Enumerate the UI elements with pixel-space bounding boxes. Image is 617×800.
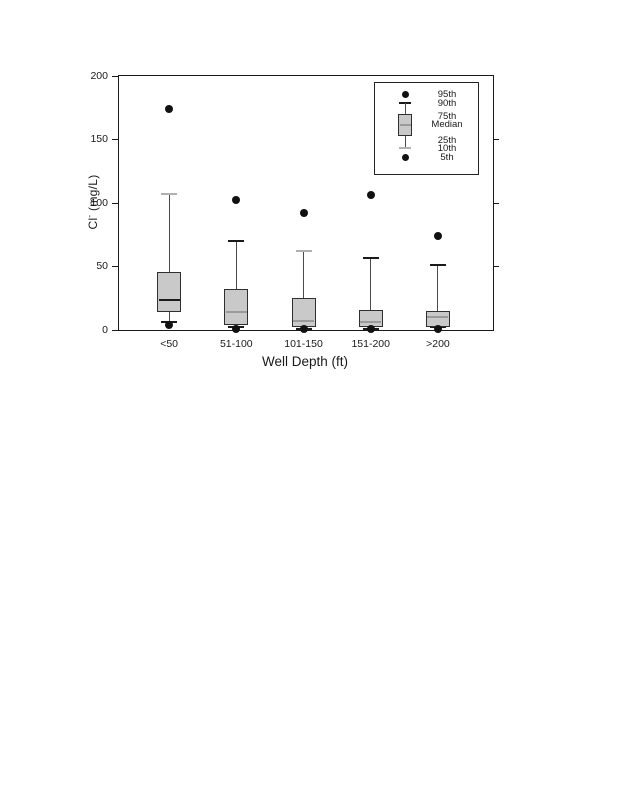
p5-dot	[367, 325, 375, 333]
x-category-label: 51-100	[201, 338, 271, 350]
median-line	[293, 320, 314, 322]
legend-entry-label: 5th	[421, 152, 473, 163]
p95-dot	[434, 232, 442, 240]
right-tick-mark	[494, 266, 499, 267]
whisker-cap	[296, 250, 312, 252]
whisker-cap	[161, 193, 177, 195]
legend-sample-whisker-line	[405, 103, 406, 114]
y-tick-mark	[112, 266, 118, 267]
y-tick-label: 200	[78, 70, 108, 83]
median-line	[226, 311, 247, 313]
y-tick-label: 0	[78, 324, 108, 337]
median-line	[159, 299, 180, 301]
p5-dot	[232, 325, 240, 333]
p95-dot	[232, 196, 240, 204]
y-tick-mark	[112, 76, 118, 77]
y-tick-label: 100	[78, 197, 108, 210]
p95-dot	[165, 105, 173, 113]
y-tick-mark	[112, 139, 118, 140]
y-tick-mark	[112, 203, 118, 204]
boxplot-figure: Cl- (mg/L) 050100150200<5051-100101-1501…	[85, 60, 515, 390]
y-tick-mark	[112, 330, 118, 331]
p95-dot	[300, 209, 308, 217]
box	[224, 289, 248, 325]
median-line	[427, 316, 448, 318]
x-axis-title: Well Depth (ft)	[205, 354, 405, 369]
y-axis-title-superscript: -	[85, 215, 94, 218]
box	[157, 272, 181, 313]
y-tick-label: 150	[78, 133, 108, 146]
whisker-line	[169, 194, 170, 271]
legend-sample-dot-5th	[402, 154, 409, 161]
legend-sample-median-line	[400, 124, 411, 126]
right-tick-mark	[494, 139, 499, 140]
legend: 95th90th75thMedian25th10th5th	[374, 82, 479, 175]
x-category-label: 151-200	[336, 338, 406, 350]
whisker-line	[303, 251, 304, 298]
whisker-line	[236, 241, 237, 289]
p95-dot	[367, 191, 375, 199]
whisker-line	[437, 265, 438, 311]
page: { "page": { "background": "#ffffff" }, "…	[0, 0, 617, 800]
right-tick-mark	[494, 203, 499, 204]
p5-dot	[434, 325, 442, 333]
x-category-label: 101-150	[269, 338, 339, 350]
p5-dot	[165, 321, 173, 329]
y-tick-label: 50	[78, 260, 108, 273]
legend-entry-label: Median	[421, 119, 473, 130]
x-category-label: <50	[134, 338, 204, 350]
y-axis-title-element: Cl	[86, 218, 100, 230]
box	[292, 298, 316, 327]
median-line	[360, 321, 381, 323]
p5-dot	[300, 325, 308, 333]
whisker-line	[370, 258, 371, 310]
legend-sample-cap-10th	[399, 147, 411, 149]
whisker-cap	[363, 257, 379, 259]
x-category-label: >200	[403, 338, 473, 350]
whisker-cap	[228, 240, 244, 242]
legend-entry-label: 90th	[421, 98, 473, 109]
legend-sample-dot-95th	[402, 91, 409, 98]
whisker-cap	[430, 264, 446, 266]
